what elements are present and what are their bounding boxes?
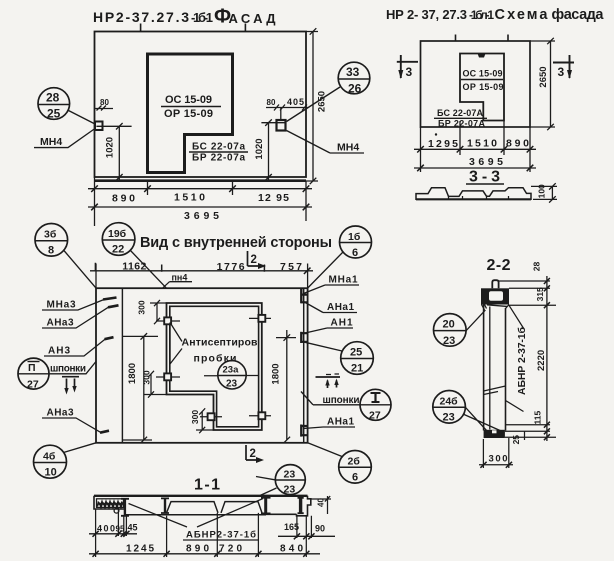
svg-text:НР2-37.27.3: НР2-37.27.3 bbox=[93, 9, 189, 25]
svg-text:28: 28 bbox=[532, 262, 542, 272]
svg-text:100: 100 bbox=[537, 184, 547, 198]
svg-text:21: 21 bbox=[351, 363, 363, 375]
svg-text:25: 25 bbox=[511, 435, 521, 445]
svg-text:3: 3 bbox=[406, 65, 413, 79]
svg-text:27: 27 bbox=[369, 410, 381, 422]
svg-text:1800: 1800 bbox=[127, 363, 138, 384]
svg-text:95: 95 bbox=[116, 525, 125, 534]
svg-text:26: 26 bbox=[348, 82, 362, 96]
svg-text:шпонки: шпонки bbox=[50, 364, 86, 375]
svg-text:23: 23 bbox=[284, 484, 296, 496]
svg-text:Схема: Схема bbox=[495, 7, 549, 23]
svg-text:1020: 1020 bbox=[105, 137, 116, 158]
svg-text:АСАД: АСАД bbox=[229, 11, 277, 26]
svg-text:20: 20 bbox=[443, 319, 455, 331]
svg-text:23: 23 bbox=[284, 469, 296, 481]
svg-text:80: 80 bbox=[267, 98, 276, 107]
svg-text:АНа1: АНа1 bbox=[327, 417, 354, 428]
svg-text:2-2: 2-2 bbox=[487, 257, 511, 274]
svg-text:1245: 1245 bbox=[126, 544, 154, 555]
svg-text:33: 33 bbox=[346, 65, 360, 79]
svg-text:12 95: 12 95 bbox=[258, 192, 289, 204]
svg-text:23: 23 bbox=[443, 335, 455, 347]
svg-text:757: 757 bbox=[280, 261, 302, 273]
svg-text:720: 720 bbox=[219, 544, 242, 555]
svg-text:23а: 23а bbox=[223, 365, 240, 376]
svg-text:2б: 2б bbox=[348, 456, 361, 468]
svg-text:115: 115 bbox=[533, 410, 543, 424]
svg-text:АНа3: АНа3 bbox=[47, 408, 74, 419]
svg-text:БС 22-07А: БС 22-07А bbox=[437, 108, 484, 118]
svg-text:ОС 15-09: ОС 15-09 bbox=[463, 69, 503, 79]
svg-text:ОР 15-09: ОР 15-09 bbox=[463, 82, 504, 92]
svg-text:П: П bbox=[28, 362, 36, 374]
svg-text:БС 22-07а: БС 22-07а bbox=[192, 142, 245, 153]
svg-text:40: 40 bbox=[317, 498, 326, 507]
svg-text:АН1: АН1 bbox=[331, 318, 353, 329]
svg-text:1800: 1800 bbox=[271, 363, 282, 384]
svg-text:165: 165 bbox=[284, 522, 299, 532]
svg-text:АБНР 2-37-1б: АБНР 2-37-1б bbox=[516, 327, 528, 396]
svg-text:1776: 1776 bbox=[217, 261, 245, 273]
svg-text:1б: 1б bbox=[348, 231, 361, 243]
svg-text:45: 45 bbox=[128, 523, 138, 533]
svg-text:4б: 4б bbox=[43, 451, 56, 463]
svg-text:1162: 1162 bbox=[122, 260, 146, 272]
svg-text:315: 315 bbox=[535, 287, 545, 301]
svg-text:890: 890 bbox=[112, 193, 135, 205]
svg-text:6: 6 bbox=[352, 247, 358, 259]
svg-text:3: 3 bbox=[558, 65, 565, 79]
svg-text:23: 23 bbox=[226, 379, 238, 390]
svg-text:10: 10 bbox=[45, 467, 57, 479]
svg-text:6: 6 bbox=[352, 472, 358, 484]
svg-text:ОР 15-09: ОР 15-09 bbox=[164, 108, 213, 120]
svg-text:1020: 1020 bbox=[254, 138, 265, 159]
svg-text:МНа1: МНа1 bbox=[329, 275, 358, 286]
svg-text:2220: 2220 bbox=[536, 350, 547, 371]
svg-text:890: 890 bbox=[506, 138, 529, 150]
svg-text:890: 890 bbox=[186, 544, 209, 555]
svg-text:1-1: 1-1 bbox=[194, 477, 220, 494]
svg-text:-1б-1: -1б-1 bbox=[191, 10, 213, 25]
svg-text:300: 300 bbox=[489, 454, 508, 465]
svg-text:22: 22 bbox=[112, 244, 124, 256]
svg-text:НР 2- 37, 27.3: НР 2- 37, 27.3 bbox=[386, 7, 467, 22]
svg-text:АН3: АН3 bbox=[48, 346, 70, 357]
svg-text:3-3: 3-3 bbox=[469, 169, 500, 186]
svg-text:фасада: фасада bbox=[552, 7, 605, 23]
svg-text:25: 25 bbox=[47, 107, 61, 121]
svg-text:25: 25 bbox=[350, 347, 362, 359]
svg-text:2: 2 bbox=[251, 254, 257, 266]
svg-text:2: 2 bbox=[250, 448, 256, 460]
svg-text:3б: 3б bbox=[44, 229, 57, 241]
svg-text:90: 90 bbox=[315, 524, 325, 534]
svg-text:300: 300 bbox=[190, 410, 200, 424]
svg-text:27: 27 bbox=[27, 379, 39, 391]
svg-text:БР 22-07А: БР 22-07А bbox=[438, 119, 486, 129]
svg-text:МН4: МН4 bbox=[40, 136, 62, 148]
svg-text:-1бл-1: -1бл-1 bbox=[469, 8, 494, 22]
svg-text:840: 840 bbox=[280, 544, 303, 555]
svg-text:АБНР2-37-1б: АБНР2-37-1б bbox=[186, 530, 256, 541]
svg-text:МН4: МН4 bbox=[337, 142, 359, 154]
svg-text:23: 23 bbox=[443, 412, 455, 424]
svg-text:пн4: пн4 bbox=[172, 273, 188, 283]
svg-text:2650: 2650 bbox=[538, 66, 549, 87]
svg-text:АНа3: АНа3 bbox=[47, 318, 74, 329]
svg-text:405: 405 bbox=[287, 97, 304, 107]
svg-text:Вид с внутренней стороны: Вид с внутренней стороны bbox=[140, 235, 332, 251]
svg-text:400: 400 bbox=[97, 524, 115, 534]
svg-text:ОС 15-09: ОС 15-09 bbox=[165, 94, 212, 106]
svg-text:МНа3: МНа3 bbox=[47, 300, 76, 311]
svg-text:24б: 24б bbox=[440, 396, 459, 408]
svg-text:Антисептиров: Антисептиров bbox=[182, 337, 259, 349]
svg-text:АНа1: АНа1 bbox=[327, 302, 354, 313]
svg-text:2650: 2650 bbox=[317, 91, 328, 112]
svg-text:БР 22-07а: БР 22-07а bbox=[192, 153, 245, 164]
svg-text:28: 28 bbox=[46, 91, 60, 105]
svg-text:19б: 19б bbox=[108, 228, 127, 240]
svg-text:8: 8 bbox=[48, 245, 54, 257]
svg-text:300: 300 bbox=[142, 370, 152, 384]
svg-text:300: 300 bbox=[137, 300, 147, 314]
